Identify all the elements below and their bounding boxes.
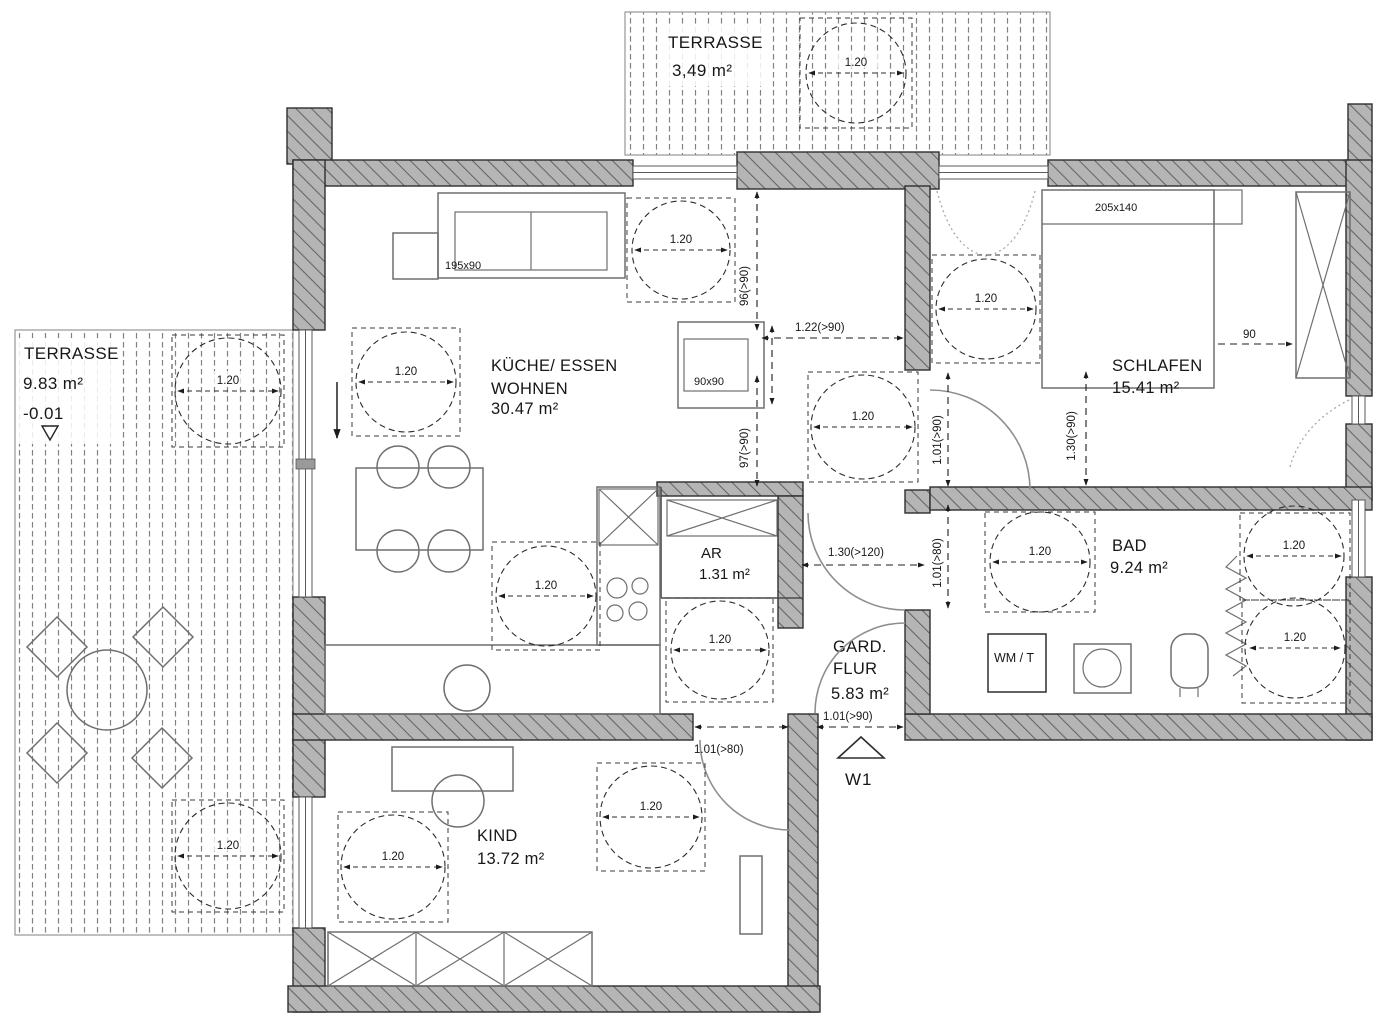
wall-bottom-right-block (905, 714, 1372, 740)
desk (392, 747, 513, 827)
kueche-name1: KÜCHE/ ESSEN (491, 357, 617, 375)
desk-chair-icon (432, 775, 484, 827)
dim-90-wardrobe: 90 (1218, 329, 1292, 344)
window-left-long (296, 330, 315, 597)
washer-box: WM / T (988, 634, 1046, 692)
wall-left-a (293, 160, 325, 330)
svg-text:1.01(>90): 1.01(>90) (932, 415, 944, 465)
turning-circle: 1.20 (1242, 598, 1350, 703)
wall-kitchen-kind (293, 714, 693, 740)
terrace-top: TERRASSE 3,49 m² (625, 12, 1050, 155)
svg-text:96(>90): 96(>90) (739, 266, 751, 306)
flur-area: 5.83 m² (831, 685, 889, 703)
svg-text:1.20: 1.20 (852, 411, 874, 423)
dining-table-set (356, 446, 483, 572)
kueche-name2: WOHNEN (491, 380, 568, 398)
wall-top-right (1048, 160, 1350, 186)
flur-name2: FLUR (833, 660, 877, 678)
wall-ar-top (657, 482, 803, 496)
kueche-area: 30.47 m² (491, 400, 559, 418)
turning-circle: 1.20 (1240, 506, 1350, 606)
ar-shelf (667, 500, 777, 536)
svg-text:1.30(>90): 1.30(>90) (1066, 411, 1078, 461)
turning-circle: 1.20 (985, 512, 1095, 612)
entrance-label: W1 (845, 770, 873, 789)
svg-text:97(>90): 97(>90) (739, 428, 751, 468)
dim-101-80-kind: 1.01(>80) (694, 727, 788, 756)
bathroom-sink-icon (1074, 644, 1131, 693)
side-table (393, 233, 438, 279)
ar-area: 1.31 m² (699, 566, 750, 583)
wall-pillar-top-left (287, 108, 332, 164)
window-top-1 (633, 166, 737, 179)
ar-name: AR (701, 545, 722, 562)
dim-122: 1.22(>90) (762, 322, 903, 338)
stove-icon (607, 578, 648, 621)
svg-text:1.22(>90): 1.22(>90) (795, 322, 845, 334)
kitchen-sink-icon (444, 665, 490, 711)
dim-130-90: 1.30(>90) (1066, 372, 1086, 485)
flur-name1: GARD. (833, 638, 887, 656)
svg-text:1.20: 1.20 (1283, 540, 1305, 552)
svg-text:1.01(>80): 1.01(>80) (694, 744, 744, 756)
entrance-marker-icon (838, 737, 884, 758)
floor-plan-canvas: TERRASSE 3,49 m² TERRASSE 9.83 m² -0.01 (0, 0, 1400, 1027)
wall-hall-bad (905, 610, 930, 714)
svg-text:1.20: 1.20 (535, 580, 557, 592)
turning-circle: 1.20 (352, 328, 460, 436)
svg-text:1.30(>120): 1.30(>120) (828, 547, 884, 559)
wall-kind-bottom (288, 986, 820, 1012)
wall-schlafen-bad (930, 487, 1372, 510)
dim-97: 97(>90) (739, 376, 757, 486)
svg-text:1.20: 1.20 (670, 234, 692, 246)
schlafen-area: 15.41 m² (1112, 379, 1180, 397)
window-top-2 (939, 166, 1048, 179)
shelf-kind (740, 856, 762, 934)
svg-text:1.20: 1.20 (845, 57, 867, 69)
wall-pillar-top-right (1348, 104, 1372, 162)
kind-name: KIND (477, 827, 518, 845)
dim-130-120: 1.30(>120) (802, 547, 924, 565)
svg-text:1.20: 1.20 (1284, 632, 1306, 644)
turning-circle: 1.20 (808, 372, 918, 482)
schlafen-room: 205x140 SCHLAFEN 15.41 m² (937, 190, 1350, 467)
furniture-living-kitchen: 195x90 90x90 (325, 193, 772, 714)
terrace-top-name: TERRASSE (668, 33, 763, 52)
svg-text:1.20: 1.20 (1029, 546, 1051, 558)
curtain-arc-right (986, 191, 1035, 256)
turning-circle: 1.20 (597, 763, 705, 871)
floor-plan-page: TERRASSE 3,49 m² TERRASSE 9.83 m² -0.01 (0, 0, 1400, 1027)
wall-left-b (293, 597, 325, 797)
square-table-size-label: 90x90 (694, 376, 724, 388)
turning-circle: 1.20 (492, 542, 600, 650)
turning-circle: 1.20 (338, 812, 448, 922)
wall-ar-pillar (778, 496, 803, 628)
kueche-labels: KÜCHE/ ESSEN WOHNEN 30.47 m² (491, 357, 617, 418)
wall-top-mid (737, 152, 939, 189)
window-right-2 (1352, 500, 1365, 577)
sofa-size-label: 195x90 (445, 260, 481, 272)
ar-room: AR 1.31 m² (667, 500, 777, 583)
svg-text:1.20: 1.20 (975, 293, 997, 305)
svg-text:1.20: 1.20 (217, 375, 239, 387)
turning-circle: 1.20 (627, 198, 735, 302)
terrace-left: TERRASSE 9.83 m² -0.01 (15, 330, 293, 935)
svg-text:1.01(>80): 1.01(>80) (932, 538, 944, 588)
kitchen-tall-unit (599, 489, 658, 545)
curtain-arc-left (937, 191, 986, 256)
kind-area: 13.72 m² (477, 850, 545, 868)
washer-label: WM / T (994, 651, 1034, 665)
turning-circle: 1.20 (932, 255, 1040, 363)
dim-101-90-entrance: 1.01(>90) (817, 711, 903, 727)
window-left-kind (299, 797, 312, 928)
sofa: 195x90 (438, 193, 625, 278)
svg-text:1.20: 1.20 (709, 634, 731, 646)
wardrobe-schlafen (1296, 192, 1350, 378)
wall-kind-right (788, 714, 818, 1012)
curtain-arc-window (1290, 400, 1349, 467)
door-arc-bad (808, 513, 905, 610)
square-table-90: 90x90 (678, 322, 772, 408)
toilet-icon (1171, 634, 1208, 697)
dim-96: 96(>90) (739, 192, 757, 330)
turning-circle: 1.20 (666, 598, 773, 702)
svg-text:1.20: 1.20 (395, 366, 417, 378)
svg-text:90: 90 (1243, 329, 1256, 341)
bad-room: WM / T BAD 9.24 m² (988, 537, 1246, 697)
terrase-left-area: 9.83 m² (23, 374, 83, 393)
bad-name: BAD (1112, 537, 1147, 555)
terrace-left-level: -0.01 (23, 404, 64, 423)
bed-size-label: 205x140 (1095, 202, 1137, 214)
svg-text:1.20: 1.20 (217, 840, 239, 852)
terrace-left-name: TERRASSE (24, 344, 119, 363)
svg-text:1.20: 1.20 (382, 851, 404, 863)
bad-area: 9.24 m² (1110, 559, 1168, 577)
door-arc-schlafen (930, 390, 1030, 490)
svg-text:1.01(>90): 1.01(>90) (823, 711, 873, 723)
wall-hall-bad-stub (905, 490, 930, 513)
wardrobe-kind (328, 932, 592, 986)
terrace-top-area: 3,49 m² (672, 61, 732, 80)
dim-101-80-bad: 1.01(>80) (932, 505, 948, 608)
window-right-1 (1352, 396, 1365, 424)
shower-curtain-icon (1226, 556, 1246, 676)
wall-top-left (293, 160, 633, 186)
schlafen-name: SCHLAFEN (1112, 357, 1202, 375)
svg-text:1.20: 1.20 (640, 801, 662, 813)
wall-hall-schlafen (905, 186, 930, 370)
